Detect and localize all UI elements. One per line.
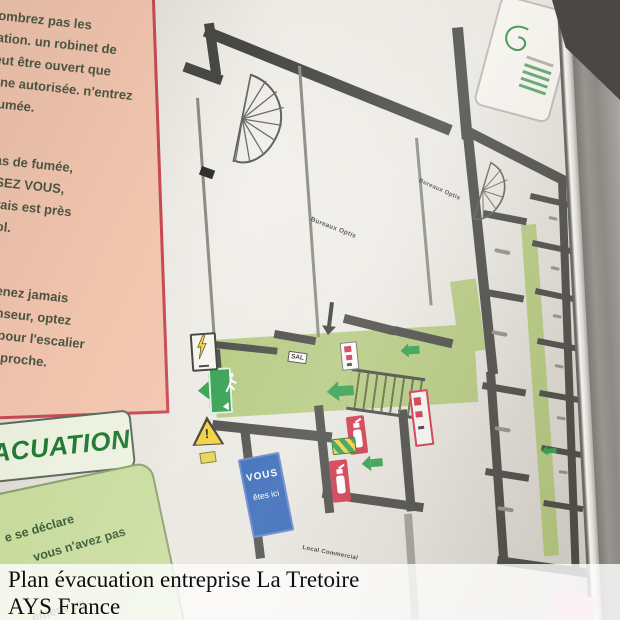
electrical-hazard-sign xyxy=(190,332,219,372)
wall-segment xyxy=(415,138,433,306)
caption-title: Plan évacuation entreprise La Tretoire xyxy=(8,567,620,593)
room-label-smudge xyxy=(550,266,559,271)
hazard-tag xyxy=(199,451,216,464)
room-label-smudge xyxy=(559,470,568,474)
room-label-smudge xyxy=(552,314,561,319)
room-label-local-commercial: Local Commercial xyxy=(302,545,359,562)
caption-bar: Plan évacuation entreprise La Tretoire A… xyxy=(0,564,620,620)
safety-instructions-text: combrez pas les uation. un robinet de pe… xyxy=(0,0,143,380)
you-are-here-sign: VOUS êtes ici xyxy=(238,452,294,539)
room-label-smudge xyxy=(554,364,563,369)
room-label-bureaux-optis: Bureaux Optis xyxy=(309,216,357,240)
wall-segment xyxy=(452,27,473,140)
safety-instructions-panel: ✳ combrez pas les uation. un robinet de … xyxy=(0,0,169,420)
lightning-bolt-icon xyxy=(192,335,212,362)
emergency-exit-sign xyxy=(197,367,233,415)
room-label-smudge xyxy=(494,248,510,255)
evacuation-title: EVACUATION xyxy=(0,424,132,473)
wall-segment xyxy=(485,468,530,482)
caption-source: AYS France xyxy=(8,594,620,620)
room-label-bureaux-optis: Bureaux Optis xyxy=(418,178,461,202)
wall-segment xyxy=(196,98,216,343)
photo-of-evacuation-plan: Bureaux Optis Bureaux Optis Local Commer… xyxy=(0,0,620,620)
room-label-smudge xyxy=(556,416,565,421)
evacuation-poster: Bureaux Optis Bureaux Optis Local Commer… xyxy=(0,0,620,620)
exit-running-man-icon xyxy=(208,367,233,414)
fire-point-label xyxy=(340,341,360,371)
room-label-smudge xyxy=(548,216,557,221)
spiral-staircase-icon xyxy=(222,68,300,181)
exclamation-mark: ! xyxy=(204,426,209,441)
fire-extinguisher-icon xyxy=(329,459,351,503)
wall-segment xyxy=(486,371,508,563)
wall-segment xyxy=(298,66,319,338)
wall-segment xyxy=(212,420,332,442)
direction-stripe-sign xyxy=(331,437,357,455)
